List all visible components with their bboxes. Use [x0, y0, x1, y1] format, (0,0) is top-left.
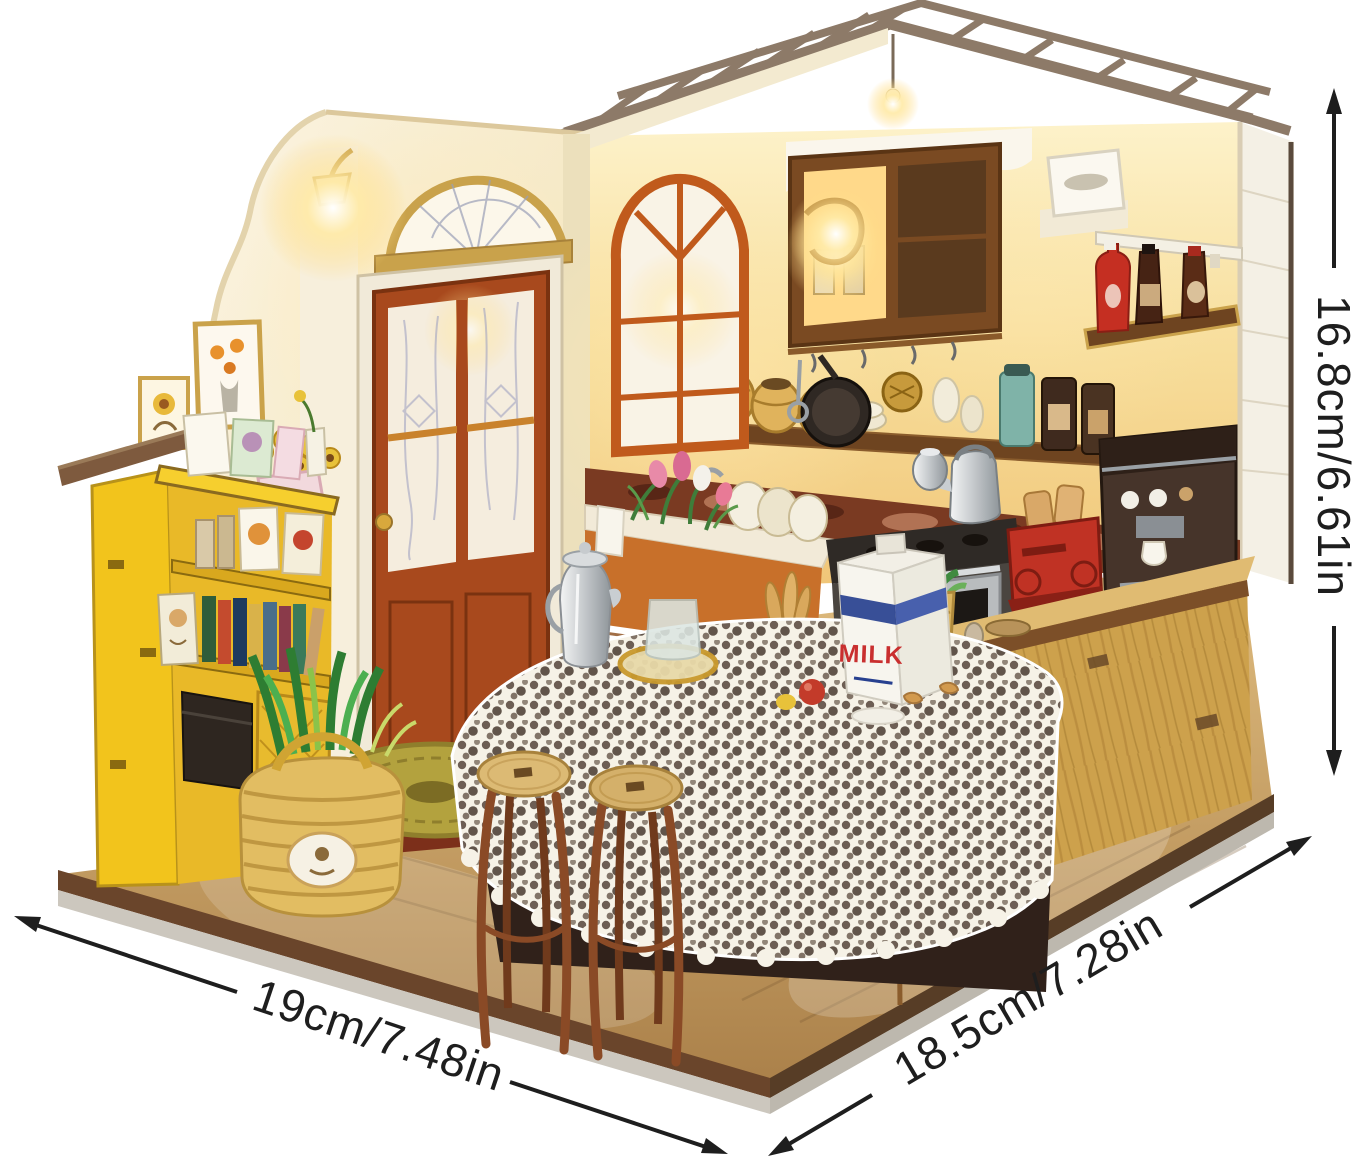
door-knob — [376, 514, 392, 530]
dollhouse-photo: MILK — [0, 0, 1366, 1164]
books-row — [158, 593, 324, 676]
storage-box — [182, 692, 252, 790]
right-side-wall — [1240, 122, 1294, 584]
arrow-down-icon — [1326, 750, 1342, 776]
wall-lamp — [259, 134, 407, 282]
arch-window — [616, 178, 744, 452]
height-dimension-label: 16.8cm/6.61in — [1308, 295, 1360, 597]
arrow-upright-icon — [1286, 836, 1312, 856]
product-image: MILK — [0, 0, 1366, 1164]
tissue-box — [1040, 150, 1128, 238]
arrow-downright-icon — [701, 1138, 728, 1154]
arrow-up-icon — [1326, 88, 1342, 114]
dimension-height: 16.8cm/6.61in — [1308, 88, 1360, 776]
coffee-cup — [1142, 542, 1166, 565]
towel — [596, 506, 624, 556]
arrow-downleft-icon — [768, 1136, 794, 1156]
apple — [799, 679, 825, 705]
wall-sconce — [788, 186, 884, 282]
milk-carton-label: MILK — [838, 640, 904, 670]
arrow-upleft-icon — [14, 916, 41, 932]
